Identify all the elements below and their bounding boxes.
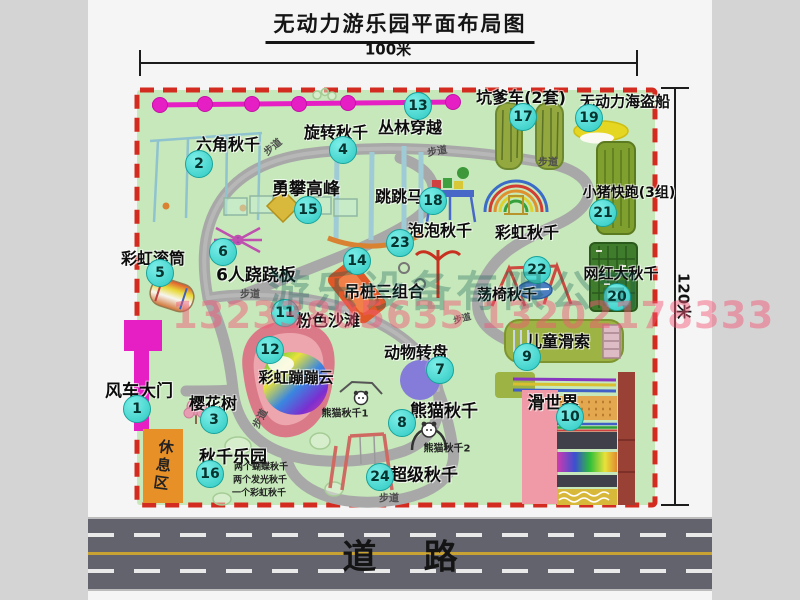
marker-badge-18: 18 — [419, 187, 447, 215]
marker-badge-17: 17 — [509, 103, 537, 131]
marker-label-24: 超级秋千 — [390, 461, 458, 486]
marker-label-21: 小猪快跑(3组) — [583, 182, 676, 202]
marker-label-23: 泡泡秋千 — [408, 217, 472, 241]
extra-label-2: 熊猫秋千2 — [424, 440, 471, 455]
watermark-phone: 13233805635 13202178333 — [172, 294, 774, 337]
marker-badge-13: 13 — [404, 92, 432, 120]
extra-label-11: 步道 — [379, 490, 399, 505]
marker-badge-24: 24 — [366, 463, 394, 491]
road-label: 道 路 — [342, 530, 457, 579]
marker-badge-16: 16 — [196, 460, 224, 488]
marker-badge-19: 19 — [575, 104, 603, 132]
marker-badge-15: 15 — [294, 196, 322, 224]
marker-label-18: 跳跳马 — [375, 183, 423, 207]
marker-badge-1: 1 — [123, 395, 151, 423]
extra-label-0: 彩虹秋千 — [495, 219, 559, 243]
screenshot-canvas: 无动力游乐园平面布局图 100米 120米 — [0, 0, 800, 600]
marker-badge-2: 2 — [185, 150, 213, 178]
rest-area-box: 休息区 — [143, 429, 183, 503]
marker-badge-3: 3 — [200, 406, 228, 434]
marker-badge-12: 12 — [256, 336, 284, 364]
marker-badge-5: 5 — [146, 259, 174, 287]
marker-badge-23: 23 — [386, 229, 414, 257]
swing-seat — [163, 203, 170, 210]
rest-area-label: 休息区 — [149, 438, 177, 494]
extra-label-1: 熊猫秋千1 — [322, 405, 369, 420]
marker-badge-10: 10 — [556, 403, 584, 431]
marker-badge-9: 9 — [513, 343, 541, 371]
extra-label-5: 一个彩虹秋千 — [232, 486, 286, 499]
extra-label-4: 两个发光秋千 — [233, 473, 287, 486]
road: 道 路 — [88, 517, 712, 591]
marker-badge-7: 7 — [426, 356, 454, 384]
marker-badge-4: 4 — [329, 136, 357, 164]
marker-label-12: 彩虹蹦蹦云 — [258, 367, 333, 388]
marker-badge-21: 21 — [589, 199, 617, 227]
marker-badge-8: 8 — [388, 409, 416, 437]
extra-label-3: 两个蝴蝶秋千 — [234, 460, 288, 473]
extra-label-8: 步道 — [538, 154, 558, 169]
marker-badge-6: 6 — [209, 238, 237, 266]
marker-label-8: 熊猫秋千 — [410, 397, 478, 422]
